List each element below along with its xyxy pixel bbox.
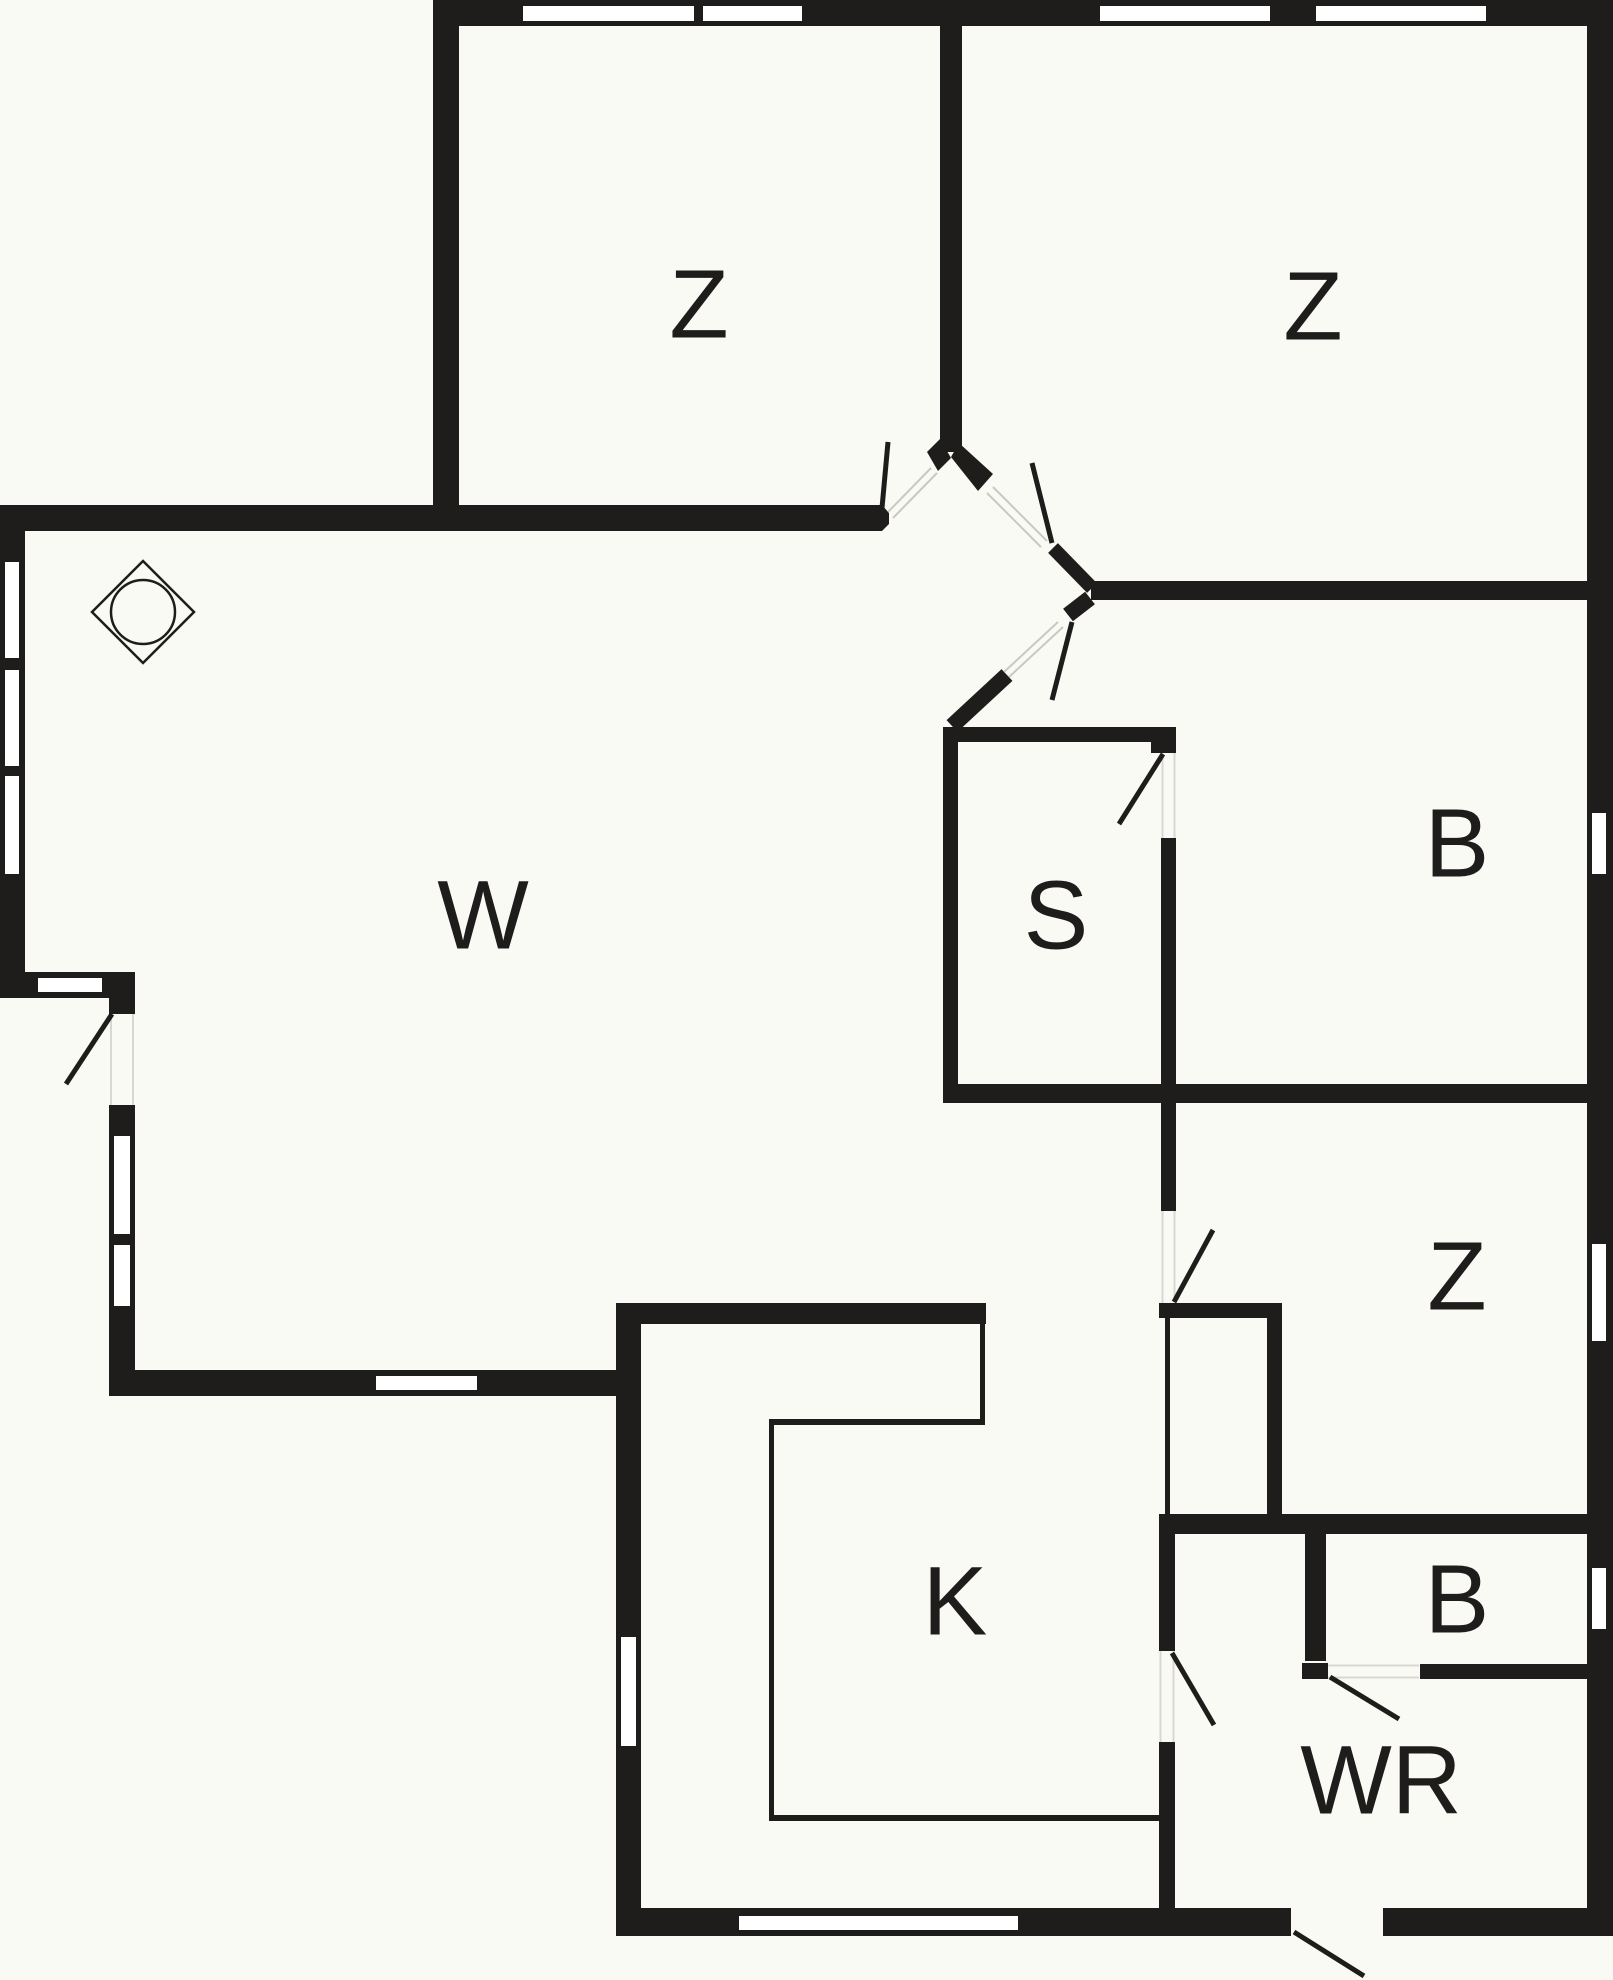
svg-text:B: B (1425, 1545, 1490, 1654)
svg-text:Z: Z (669, 250, 728, 359)
svg-text:WR: WR (1300, 1726, 1462, 1835)
svg-text:K: K (923, 1547, 988, 1656)
svg-text:Z: Z (1427, 1222, 1486, 1331)
svg-text:S: S (1024, 861, 1089, 970)
svg-text:W: W (437, 861, 529, 970)
svg-text:Z: Z (1283, 252, 1342, 361)
svg-text:B: B (1425, 789, 1490, 898)
